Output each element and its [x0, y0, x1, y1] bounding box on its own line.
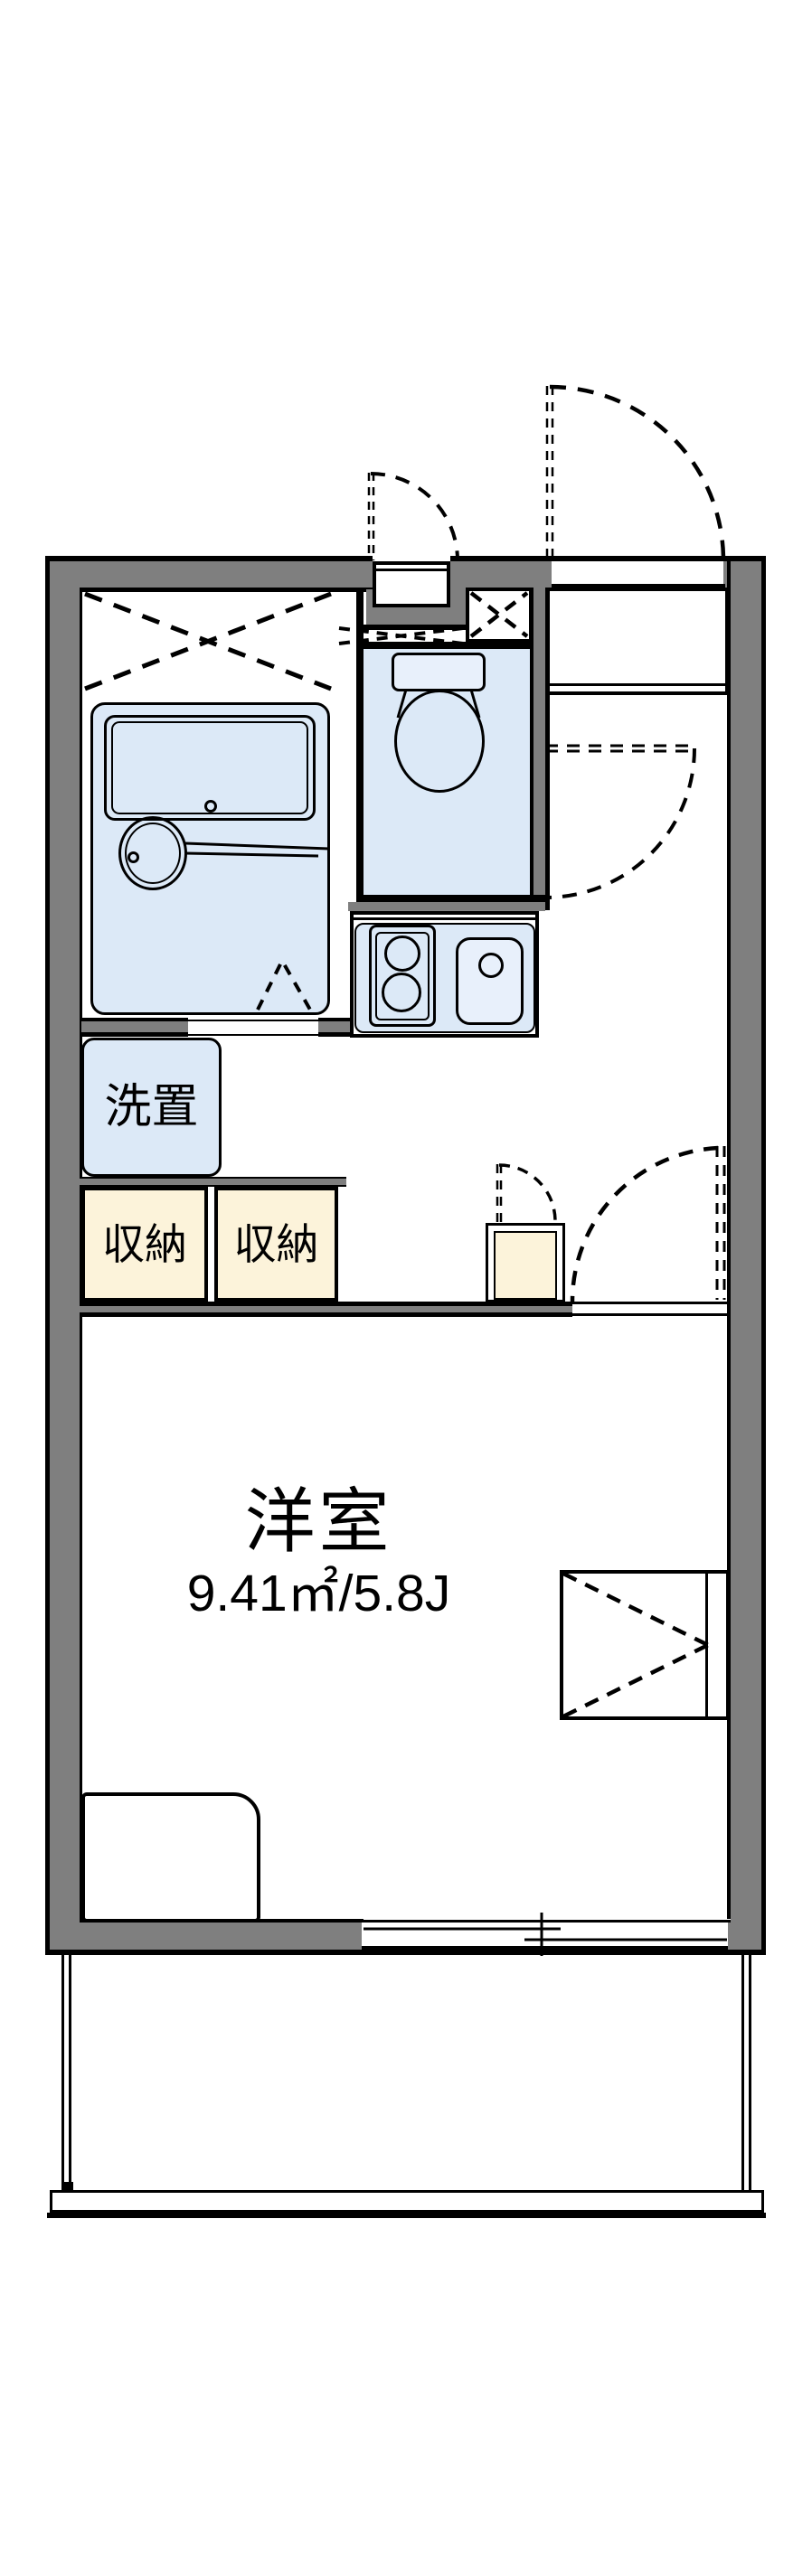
room-top-wall-edge-b: [80, 1312, 572, 1317]
toilet-tank: [392, 653, 486, 691]
pillar-door-swing-arc: [499, 1165, 555, 1221]
floorplan-canvas: 洗置 収納 収納 洋室 9.41㎡/5.8J: [0, 0, 812, 2576]
balcony-side-left-b: [69, 1955, 71, 2190]
right-wall: [731, 561, 761, 1950]
room-name-text: 洋室: [244, 1486, 392, 1556]
washer-space: 洗置: [81, 1038, 222, 1177]
top-wall-mid: [450, 561, 552, 589]
room-area-text: 9.41㎡/5.8J: [187, 1568, 451, 1620]
balcony-railing: [50, 2190, 764, 2213]
outer-wall-bottom-line: [45, 1950, 766, 1955]
hall-door-swing-arc: [545, 748, 694, 898]
sliding-window-outer-top: [362, 1920, 731, 1923]
ceiling-opening-marker-box: [466, 588, 533, 643]
bed: [81, 1792, 260, 1923]
room-door-threshold-bottom: [572, 1313, 728, 1316]
stove-burner-2: [382, 973, 421, 1012]
bathroom-wall-a: [81, 1021, 188, 1032]
entrance-threshold-line: [376, 569, 447, 571]
closet-1-label: 収納: [102, 1223, 187, 1265]
balcony-side-left-a: [61, 1955, 64, 2190]
wall-under-entrance-edge: [362, 625, 468, 630]
bathtub-drain: [204, 800, 217, 813]
toilet-top-wall: [358, 642, 533, 649]
top-wall-left: [50, 561, 373, 589]
bathroom-door-threshold-bottom: [188, 1034, 318, 1036]
closet-left-2: 収納: [214, 1187, 338, 1302]
toilet-bottom-wall-line: [358, 895, 545, 902]
bathroom-door-threshold-top: [188, 1020, 318, 1021]
bottom-wall-left: [50, 1923, 362, 1950]
closet-back-wall: [80, 1177, 346, 1187]
room-door-swing-arc: [572, 1148, 718, 1302]
stove-burner-1: [384, 935, 420, 972]
washbasin-faucet: [127, 851, 139, 863]
room-label: 洋室: [163, 1481, 475, 1562]
room-area-label: 9.41㎡/5.8J: [136, 1562, 502, 1625]
toilet-hall-wall-edge-r: [545, 588, 550, 910]
storage-cabinet-entry: [543, 588, 729, 695]
left-wall: [50, 561, 80, 1950]
closet-2-label: 収納: [234, 1223, 319, 1265]
bottom-wall-right-corner: [728, 1923, 761, 1950]
storage-door-leaf: [547, 386, 552, 560]
kitchen-sink-drain: [478, 953, 504, 978]
entrance-door-swing-arc: [371, 474, 458, 560]
balcony-side-right-a: [741, 1955, 744, 2190]
balcony-railing-base: [47, 2213, 766, 2218]
top-wall-left-inner-edge: [50, 588, 375, 592]
window-counter: [560, 1570, 730, 1720]
entrance-door-leaf: [369, 473, 373, 560]
kitchen-sink: [456, 937, 524, 1025]
window-counter-divider: [705, 1574, 708, 1716]
storage-door-swing-arc: [550, 387, 723, 560]
closet-left-1: 収納: [81, 1187, 208, 1302]
toilet-bottom-wall: [348, 902, 545, 911]
balcony-side-right-b: [749, 1955, 751, 2190]
kitchen-counter-back-line: [354, 917, 535, 920]
pillar-door-leaf: [497, 1164, 501, 1222]
washer-space-label: 洗置: [104, 1084, 198, 1131]
room-door-leaf: [717, 1146, 724, 1300]
bathroom-ceiling-x: [85, 594, 331, 689]
entry-pillar-box-inner: [494, 1231, 557, 1300]
storage-cabinet-shelf-line: [546, 683, 725, 686]
toilet-hall-wall: [533, 588, 545, 910]
room-door-threshold-top: [572, 1302, 728, 1304]
hall-door-leaf: [545, 746, 694, 751]
toilet-bowl: [394, 690, 485, 793]
bathroom-wall-edge-b: [81, 1032, 188, 1037]
right-wall-outer-edge: [761, 556, 766, 1954]
